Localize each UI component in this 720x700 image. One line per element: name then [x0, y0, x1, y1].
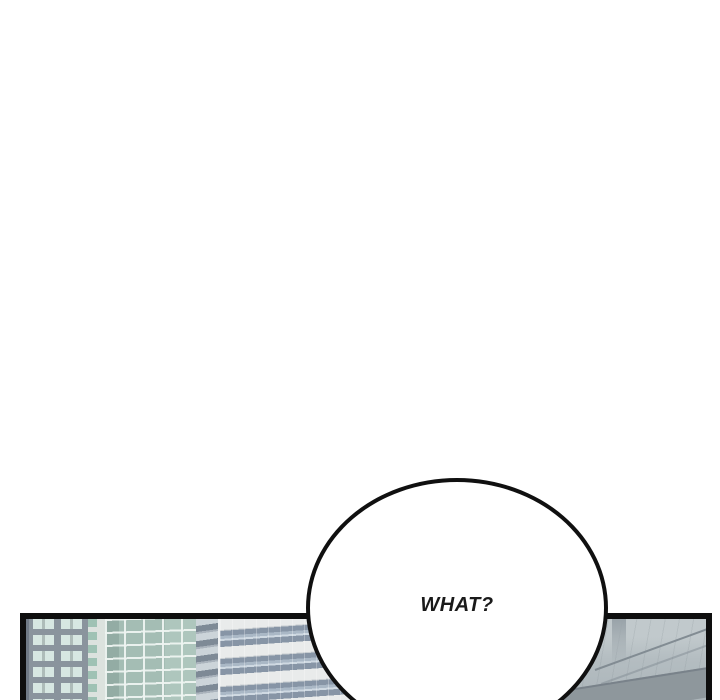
- speech-bubble-text: WHAT?: [306, 595, 608, 615]
- gray-grid-tower: [26, 619, 91, 700]
- speech-bubble: [306, 478, 608, 700]
- striped-edge-face: [196, 619, 218, 700]
- comic-page: WHAT?: [0, 0, 720, 700]
- teal-glass-tower: [105, 619, 196, 700]
- corner-strip-building: [88, 619, 105, 700]
